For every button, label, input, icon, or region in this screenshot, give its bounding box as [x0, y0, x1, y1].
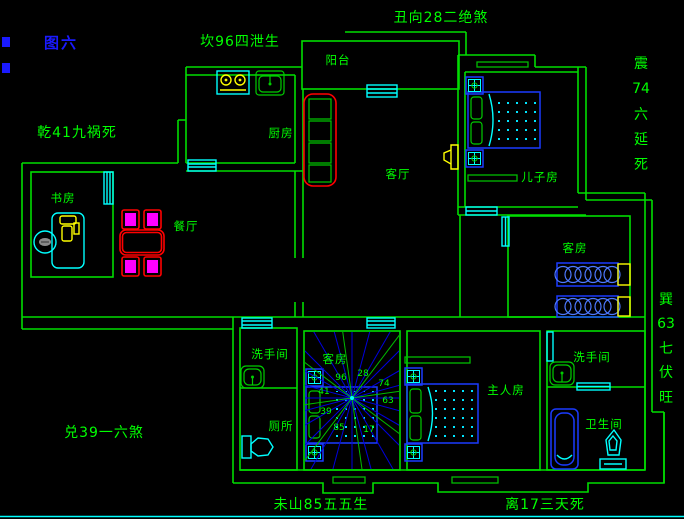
room-label-dining: 餐厅 — [174, 219, 199, 233]
nightstand — [405, 368, 422, 385]
bathroom-window — [577, 383, 610, 390]
svg-text:震: 震 — [634, 56, 648, 72]
balcony-window — [367, 85, 397, 97]
svg-text:伏: 伏 — [659, 365, 673, 381]
son-room-window — [466, 207, 497, 215]
direction-northwest: 乾41九祸死 — [37, 125, 117, 141]
dining-chair — [144, 257, 161, 276]
bathroom-toilet — [600, 430, 626, 469]
compass-number: 63 — [382, 396, 393, 406]
kitchen-window — [188, 160, 216, 171]
dining-chair — [122, 210, 139, 229]
svg-text:延: 延 — [634, 132, 648, 148]
dining-chair — [144, 210, 161, 229]
room-label-living: 客厅 — [386, 167, 411, 181]
svg-text:六: 六 — [634, 107, 648, 123]
svg-text:七: 七 — [659, 341, 673, 357]
compass-number: 74 — [378, 379, 390, 389]
direction-top: 丑向28二绝煞 — [394, 10, 489, 26]
room-label-study: 书房 — [51, 191, 76, 205]
guest-beds — [555, 263, 630, 317]
room-label-balcony: 阳台 — [326, 53, 351, 67]
nightstand — [405, 444, 422, 461]
figure-label: 图六 — [44, 34, 78, 52]
room-label-master: 主人房 — [487, 383, 525, 397]
direction-south-right: 离17三天死 — [505, 496, 585, 513]
cad-floorplan-canvas: 96 28 74 63 17 85 39 41 — [0, 0, 684, 519]
toilet-fixture — [242, 436, 273, 458]
compass-number: 17 — [363, 425, 374, 435]
svg-text:63: 63 — [657, 316, 675, 332]
direction-north: 坎96四泄生 — [200, 34, 280, 50]
son-bed — [468, 92, 540, 148]
compass-number: 85 — [333, 423, 344, 433]
room-label-guest-center: 客房 — [323, 352, 348, 366]
dining-chair — [122, 257, 139, 276]
washroom-sink — [241, 366, 264, 388]
svg-text:74: 74 — [632, 81, 650, 97]
compass-room-window — [367, 318, 395, 328]
room-label-kitchen: 厨房 — [269, 126, 294, 140]
svg-text:巽: 巽 — [659, 292, 673, 308]
study-door — [104, 172, 113, 204]
compass-number: 41 — [318, 387, 329, 397]
room-label-toilet: 厕所 — [269, 419, 294, 433]
compass-number: 96 — [335, 373, 347, 383]
direction-southeast-vertical: 巽 63 七 伏 旺 — [657, 292, 675, 406]
nightstand — [466, 150, 483, 167]
tv — [444, 145, 458, 169]
direction-east-vertical: 震 74 六 延 死 — [632, 56, 650, 173]
nightstand — [306, 369, 323, 386]
dining-table-set — [120, 210, 164, 276]
svg-text:旺: 旺 — [659, 390, 673, 406]
direction-west: 兑39一六煞 — [64, 425, 144, 441]
compass-number: 28 — [357, 369, 369, 379]
direction-south-left: 未山85五五生 — [274, 497, 369, 513]
washroom-window — [242, 318, 272, 328]
master-bed — [407, 384, 478, 443]
study-chair — [60, 216, 79, 241]
room-label-washroom-center: 洗手间 — [251, 347, 289, 361]
svg-text:死: 死 — [634, 157, 648, 173]
room-label-guest-east: 客房 — [563, 241, 588, 255]
compass-number: 39 — [320, 407, 332, 417]
room-label-washroom-east: 洗手间 — [573, 350, 611, 364]
room-label-son: 儿子房 — [521, 170, 559, 184]
bathtub — [551, 409, 578, 469]
floorplan-drawing: 96 28 74 63 17 85 39 41 — [0, 0, 684, 519]
sofa — [304, 94, 336, 186]
east-washroom-door — [547, 332, 553, 361]
nightstand — [466, 77, 483, 94]
room-label-bathroom: 卫生间 — [585, 417, 623, 431]
east-washroom-sink — [550, 362, 574, 385]
